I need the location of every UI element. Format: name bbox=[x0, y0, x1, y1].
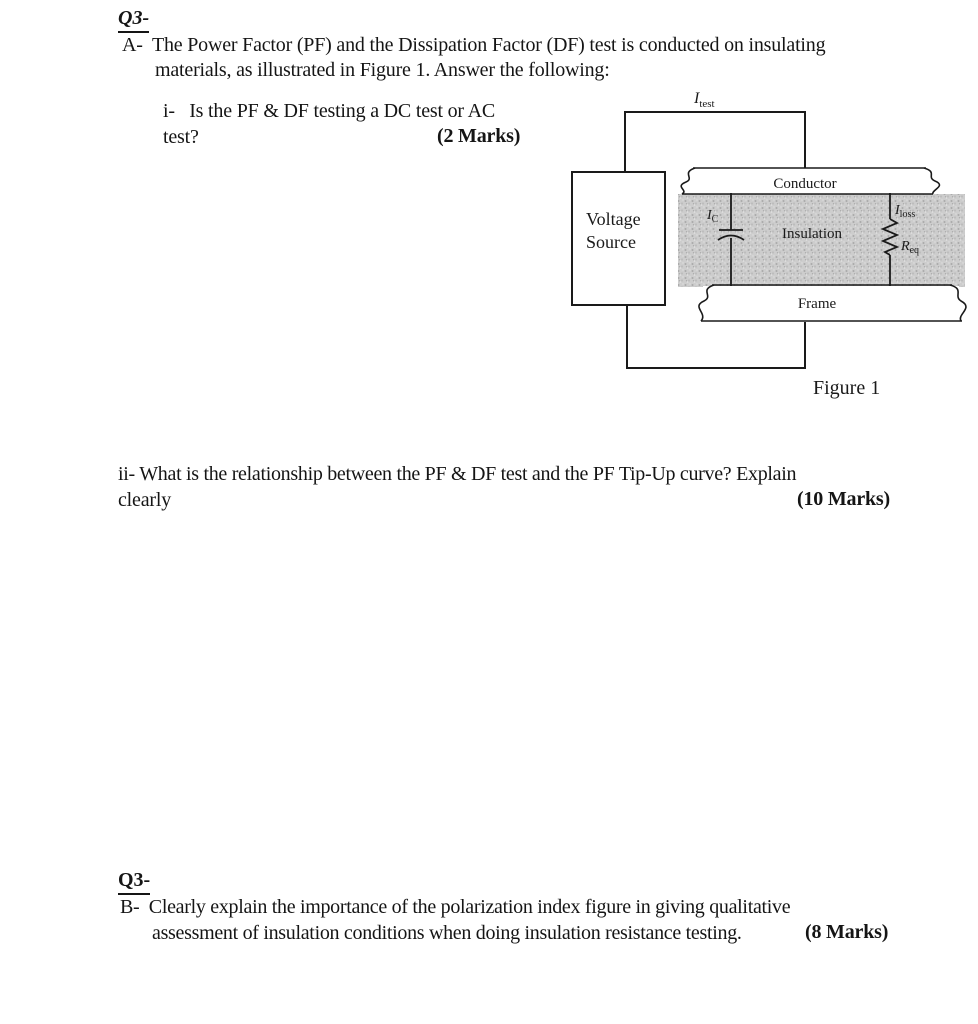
question-a-text-line-2: materials, as illustrated in Figure 1. A… bbox=[155, 58, 610, 82]
section-b-heading-text: Q3- bbox=[118, 868, 150, 895]
question-b-text-line-1: B- Clearly explain the importance of the… bbox=[120, 895, 790, 919]
figure-caption: Figure 1 bbox=[813, 377, 880, 399]
frame-band: Frame bbox=[699, 285, 966, 321]
figure-1: Itest Voltage Source Conductor IC bbox=[565, 80, 978, 410]
section-b-heading: Q3- bbox=[118, 868, 150, 895]
question-i-line-2: test? bbox=[163, 125, 199, 149]
question-i-line-1: i- Is the PF & DF testing a DC test or A… bbox=[163, 99, 495, 123]
section-a-heading: Q3- bbox=[118, 6, 149, 33]
question-i-marks: (2 Marks) bbox=[437, 124, 520, 148]
question-a-text-line-1: A- The Power Factor (PF) and the Dissipa… bbox=[122, 33, 825, 57]
question-ii-marks: (10 Marks) bbox=[797, 487, 890, 511]
test-current-wire bbox=[625, 112, 805, 172]
question-b-marks: (8 Marks) bbox=[805, 920, 888, 944]
voltage-source-label-line-2: Source bbox=[586, 232, 636, 252]
section-a-heading-text: Q3- bbox=[118, 6, 149, 33]
test-current-label: Itest bbox=[693, 90, 715, 110]
conductor-label: Conductor bbox=[773, 176, 836, 192]
document-page: Q3- A- The Power Factor (PF) and the Dis… bbox=[0, 0, 978, 1024]
frame-label: Frame bbox=[798, 296, 837, 312]
question-b-text-line-2: assessment of insulation conditions when… bbox=[152, 921, 742, 945]
question-ii-line-1: ii- What is the relationship between the… bbox=[118, 462, 796, 486]
voltage-source-label-line-1: Voltage bbox=[586, 209, 641, 229]
insulation-label: Insulation bbox=[782, 226, 842, 242]
question-ii-line-2: clearly bbox=[118, 488, 171, 512]
conductor-band: Conductor bbox=[681, 168, 939, 194]
